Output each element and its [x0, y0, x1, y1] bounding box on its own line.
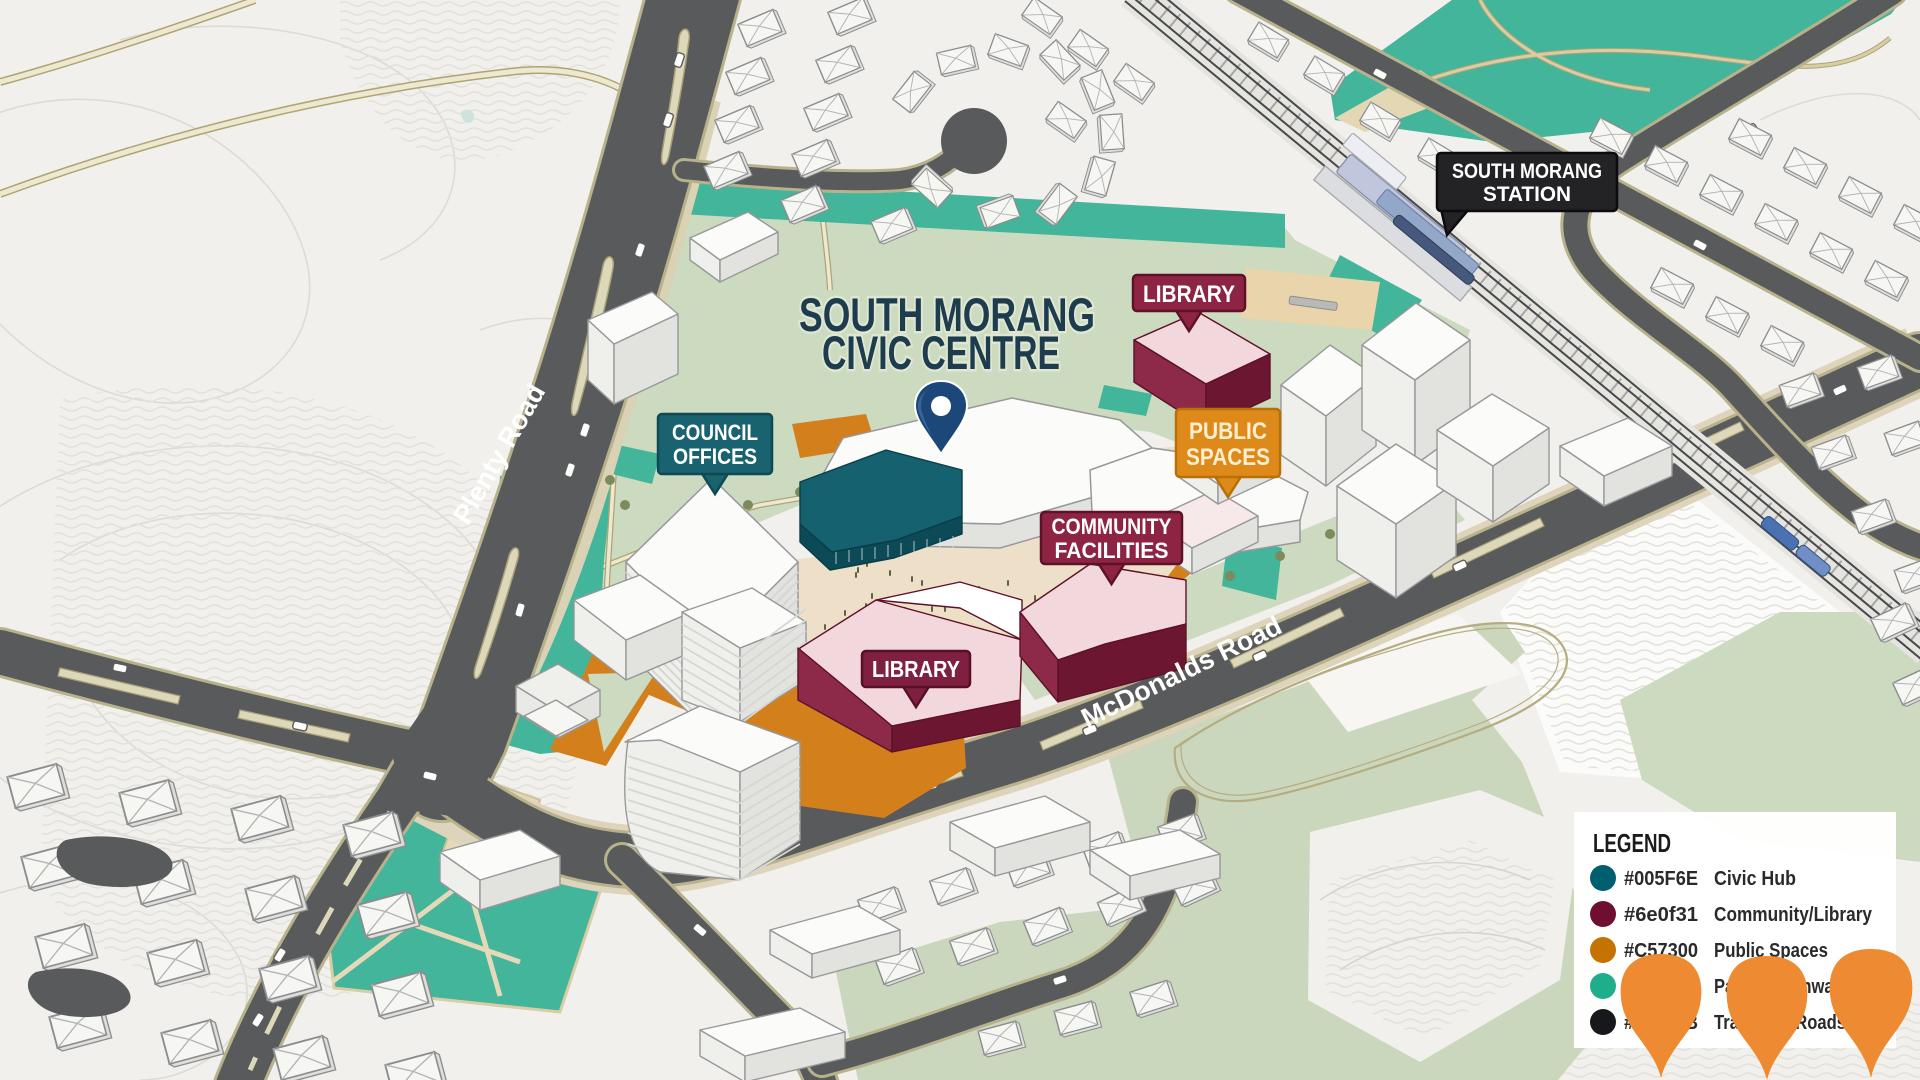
svg-text:LEGEND: LEGEND [1593, 828, 1671, 858]
svg-text:SPACES: SPACES [1186, 444, 1270, 471]
svg-text:#6e0f31: #6e0f31 [1624, 904, 1698, 926]
svg-text:COUNCIL: COUNCIL [672, 420, 758, 445]
svg-text:SOUTH MORANG: SOUTH MORANG [1452, 160, 1602, 183]
svg-text:LIBRARY: LIBRARY [872, 656, 960, 682]
svg-text:STATION: STATION [1483, 183, 1571, 206]
svg-text:FACILITIES: FACILITIES [1055, 538, 1169, 563]
svg-text:COMMUNITY: COMMUNITY [1052, 514, 1172, 539]
svg-text:LIBRARY: LIBRARY [1143, 281, 1235, 308]
svg-text:PUBLIC: PUBLIC [1189, 418, 1267, 445]
svg-text:#005F6E: #005F6E [1624, 868, 1698, 890]
svg-text:CIVIC CENTRE: CIVIC CENTRE [822, 326, 1060, 379]
svg-text:Community/Library: Community/Library [1714, 904, 1873, 926]
svg-text:Civic Hub: Civic Hub [1714, 868, 1796, 890]
svg-text:OFFICES: OFFICES [673, 444, 757, 469]
